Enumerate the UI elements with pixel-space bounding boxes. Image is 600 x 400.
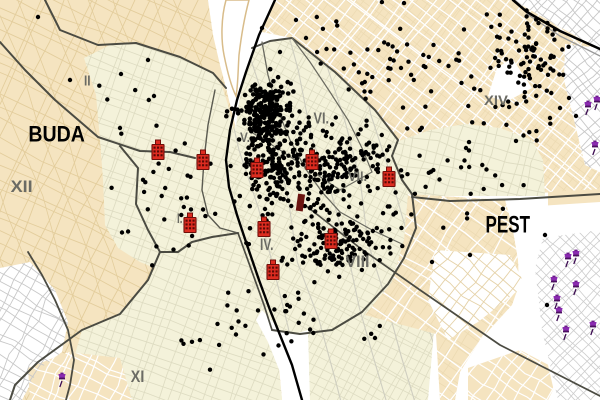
svg-text:VII.: VII. xyxy=(348,168,367,184)
svg-text:XI: XI xyxy=(131,368,145,386)
svg-text:V.: V. xyxy=(240,129,250,145)
svg-text:VIII: VIII xyxy=(346,252,370,271)
svg-text:IV.: IV. xyxy=(260,236,274,254)
svg-text:I.: I. xyxy=(177,210,183,226)
svg-text:II: II xyxy=(84,73,91,90)
svg-text:XIV: XIV xyxy=(484,92,509,108)
svg-text:VI.: VI. xyxy=(314,111,330,128)
svg-text:BUDA: BUDA xyxy=(28,121,85,146)
svg-text:PEST: PEST xyxy=(486,212,531,239)
svg-text:XII: XII xyxy=(11,178,33,196)
